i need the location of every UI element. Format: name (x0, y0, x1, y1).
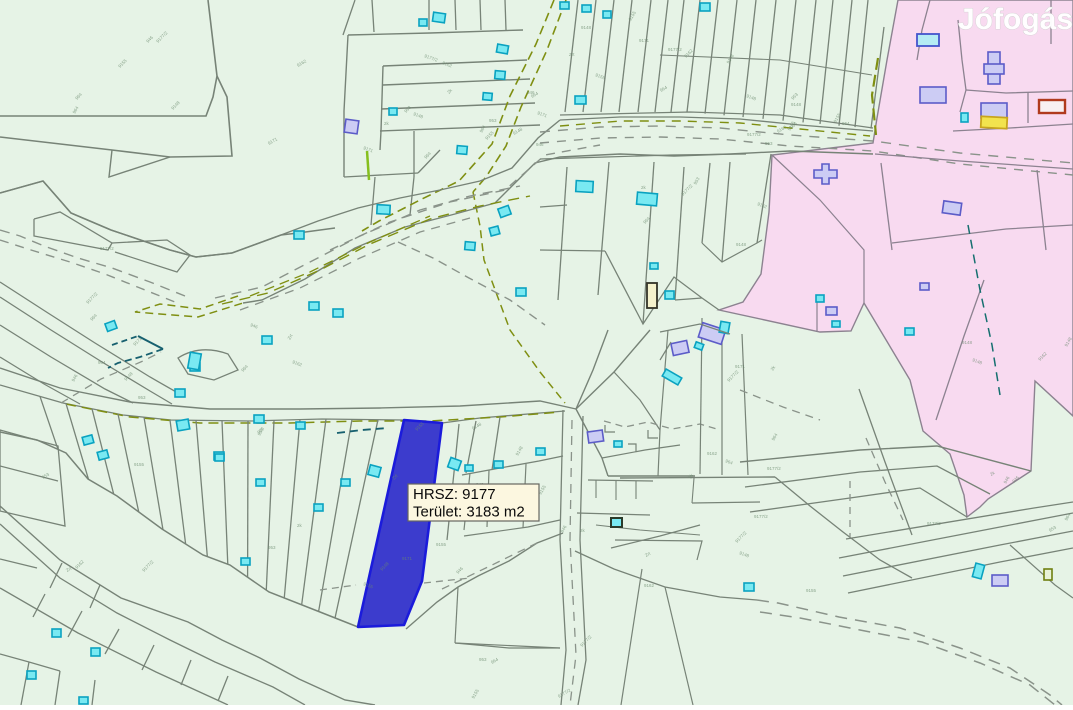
svg-text:9177/2: 9177/2 (668, 47, 682, 52)
svg-text:9171: 9171 (402, 556, 413, 561)
svg-text:964: 964 (98, 360, 106, 365)
svg-text:9171: 9171 (735, 364, 746, 369)
svg-text:9171: 9171 (639, 38, 650, 43)
svg-text:9148: 9148 (791, 102, 802, 107)
svg-text:9155: 9155 (806, 588, 817, 593)
svg-text:953: 953 (268, 545, 276, 550)
svg-text:953: 953 (479, 657, 487, 662)
svg-text:9177/2: 9177/2 (747, 132, 761, 137)
svg-text:946: 946 (536, 142, 544, 147)
svg-text:HRSZ: 9177: HRSZ: 9177 (413, 486, 496, 503)
svg-text:2k: 2k (641, 185, 647, 190)
svg-text:Terület: 3183 m2: Terület: 3183 m2 (413, 504, 525, 521)
svg-text:953: 953 (138, 395, 146, 400)
svg-text:964: 964 (842, 121, 850, 126)
svg-text:9177/2: 9177/2 (767, 466, 781, 471)
svg-text:9177/2: 9177/2 (100, 246, 114, 251)
svg-text:Zrt: Zrt (569, 52, 575, 57)
svg-text:Jófogás: Jófogás (958, 3, 1073, 36)
svg-text:953: 953 (489, 118, 497, 123)
svg-text:2k: 2k (580, 528, 586, 533)
svg-text:2k: 2k (297, 523, 303, 528)
svg-text:2k: 2k (384, 121, 390, 126)
svg-text:953: 953 (765, 141, 773, 146)
svg-text:9162: 9162 (707, 451, 718, 456)
svg-text:9177/2: 9177/2 (754, 514, 768, 519)
svg-text:9155: 9155 (436, 542, 447, 547)
svg-text:9177/2: 9177/2 (927, 521, 941, 526)
svg-text:9148: 9148 (962, 340, 973, 345)
svg-text:9155: 9155 (134, 462, 145, 467)
svg-text:9148: 9148 (581, 25, 592, 30)
svg-text:9162: 9162 (644, 583, 655, 588)
svg-text:9148: 9148 (736, 242, 747, 247)
